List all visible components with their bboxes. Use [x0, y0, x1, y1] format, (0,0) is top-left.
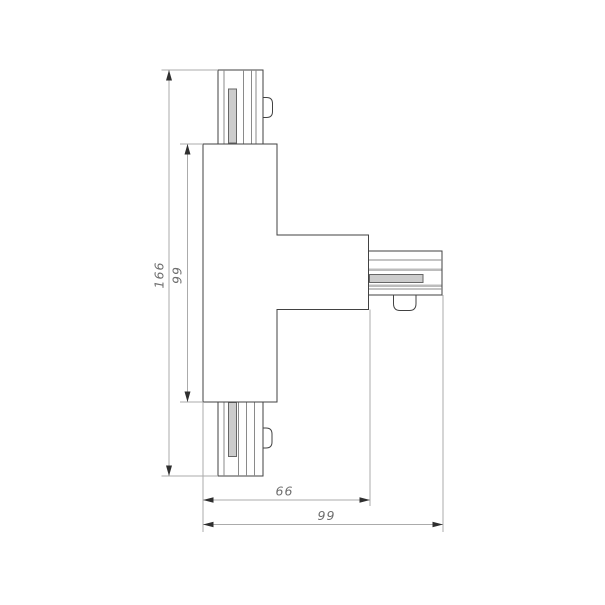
technical-drawing: 166 99 66 99 [0, 0, 605, 605]
track-stub-bottom [218, 402, 272, 476]
arrowhead-right [360, 497, 371, 503]
track-outline [218, 402, 263, 476]
track-outline [369, 251, 443, 295]
track-stub-top [218, 70, 273, 144]
dimension-label: 99 [170, 266, 185, 284]
arrowhead-up [166, 70, 172, 81]
arrowhead-left [203, 522, 214, 528]
dimension-label: 99 [318, 508, 336, 523]
arrowhead-right [433, 522, 444, 528]
drawing-canvas: 166 99 66 99 [0, 0, 605, 605]
dimension-body-height: 99 [170, 144, 191, 402]
dimension-label: 66 [276, 484, 294, 499]
connector-body [203, 144, 369, 402]
latch-clip-bottom [263, 428, 273, 448]
dimension-arm-width: 66 [203, 484, 370, 503]
contact-slot-bottom [229, 403, 237, 457]
arrowhead-down [185, 392, 191, 403]
track-groove [369, 285, 442, 288]
latch-clip-top [263, 98, 273, 118]
arrowhead-left [203, 497, 214, 503]
dimension-overall-width: 99 [203, 508, 443, 527]
latch-clip-right [394, 295, 417, 311]
track-groove [369, 269, 442, 272]
dimension-label: 166 [152, 262, 167, 289]
track-stub-right [369, 251, 443, 311]
arrowhead-down [166, 466, 172, 477]
contact-slot-top [229, 89, 237, 143]
arrowhead-up [185, 144, 191, 155]
contact-slot-right [370, 275, 424, 283]
